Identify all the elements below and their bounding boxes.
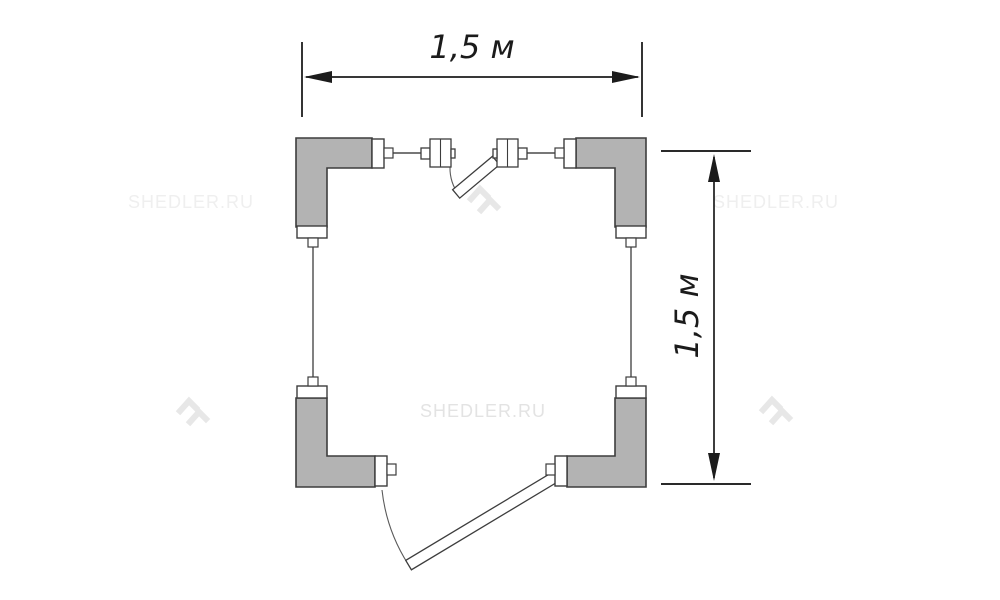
arrowhead-up-icon: [708, 154, 720, 182]
connector-nub: [384, 148, 393, 158]
height-dimension-label: 1,5 м: [668, 273, 706, 358]
watermark-logo-icon: [180, 401, 206, 422]
end-cap: [372, 139, 384, 168]
connector-nub: [546, 464, 555, 475]
connector-nub: [308, 377, 318, 386]
corner-panel-bottom-right: [567, 398, 646, 487]
end-cap: [555, 456, 567, 486]
connector-nub: [308, 238, 318, 247]
connector-nub: [626, 238, 636, 247]
watermark-text-right: SHEDLER.RU: [713, 192, 839, 212]
corner-panels: [296, 138, 646, 487]
arrowhead-right-icon: [612, 71, 640, 83]
corner-panel-top-left: [296, 138, 372, 227]
watermark-logo-icon: [763, 400, 789, 421]
enclosure-plan-drawing: SHEDLER.RU SHEDLER.RU SHEDLER.RU 1,5 м 1…: [0, 0, 1000, 600]
corner-panel-bottom-left: [296, 398, 375, 487]
panel-end-caps: [297, 139, 646, 486]
bottom-gate-panel: [406, 472, 559, 570]
hinge-post-left: [421, 139, 455, 167]
end-cap: [297, 386, 327, 398]
width-dimension-label: 1,5 м: [429, 28, 514, 66]
watermark-text-left: SHEDLER.RU: [128, 192, 254, 212]
width-dimension: 1,5 м: [302, 28, 642, 117]
end-cap: [616, 386, 646, 398]
bottom-gate-swing-arc: [382, 490, 408, 564]
connector-nub: [626, 377, 636, 386]
watermark-logo-icon: [471, 189, 497, 210]
end-cap: [616, 226, 646, 238]
watermark-text-center: SHEDLER.RU: [420, 401, 546, 421]
bottom-gate-group: [406, 472, 559, 570]
corner-panel-top-right: [576, 138, 646, 227]
arrowhead-left-icon: [304, 71, 332, 83]
hinge-post-right: [493, 139, 527, 167]
connector-nub: [387, 464, 396, 475]
arrowhead-down-icon: [708, 453, 720, 481]
end-cap: [564, 139, 576, 168]
end-cap: [375, 456, 387, 486]
diagram-canvas: SHEDLER.RU SHEDLER.RU SHEDLER.RU 1,5 м 1…: [0, 0, 1000, 600]
watermark-layer: SHEDLER.RU SHEDLER.RU SHEDLER.RU: [128, 189, 839, 422]
end-cap: [297, 226, 327, 238]
connector-nub: [555, 148, 564, 158]
